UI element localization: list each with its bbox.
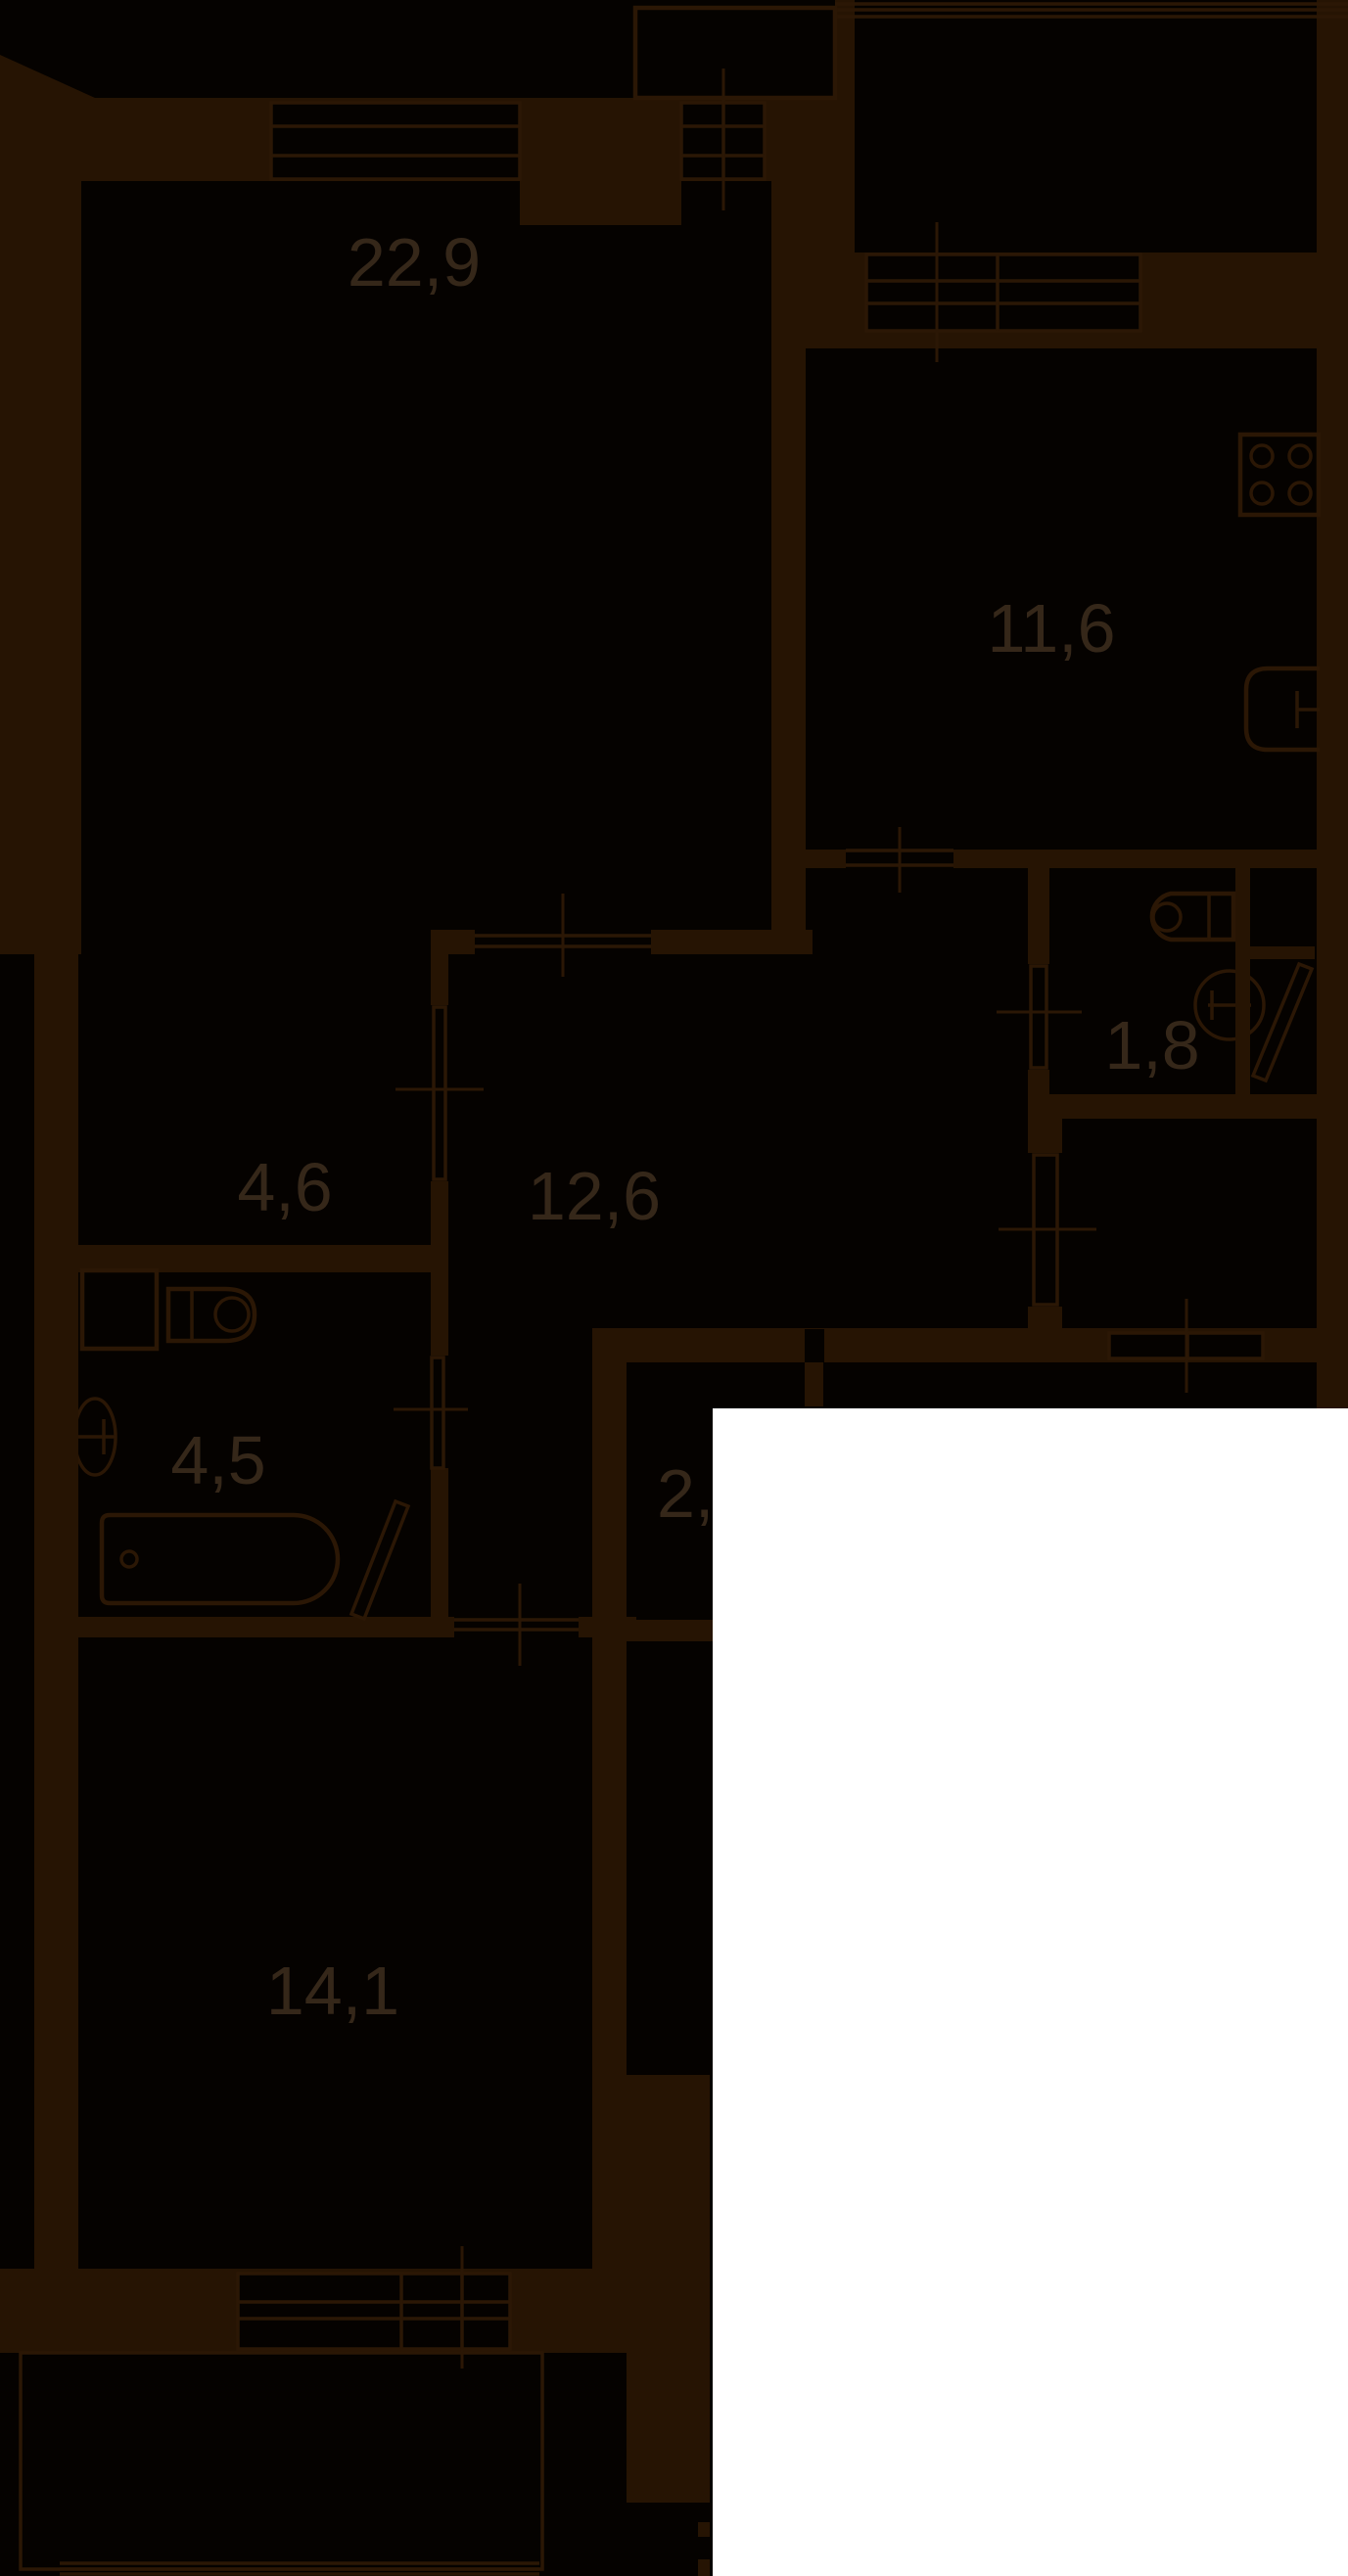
room-label-bedroom: 14,1 (266, 1953, 399, 2029)
wall-gap (805, 1329, 824, 1362)
wall-segment (1028, 1094, 1348, 1119)
wall-stub (805, 1362, 823, 1406)
wall-segment (34, 954, 78, 2271)
room-label-bathroom: 4,5 (170, 1422, 265, 1498)
wall-segment (592, 1637, 627, 2269)
window-opening (238, 2274, 510, 2349)
floorplan-canvas: 22,9 11,6 1,8 4,6 12,6 4,5 2, 14,1 (0, 0, 1348, 2576)
wall-segment (771, 225, 806, 954)
window-opening (866, 254, 1140, 331)
lower-balcony-outline (21, 2353, 542, 2569)
plan-fragment (698, 2537, 710, 2559)
wall-segment (592, 1329, 627, 1644)
room-label-wc: 1,8 (1104, 1007, 1199, 1083)
white-cover-rectangle (713, 1408, 1348, 2576)
room-label-closet: 2, (657, 1455, 714, 1532)
room-label-kitchen: 11,6 (987, 590, 1115, 667)
wall-segment (0, 181, 81, 954)
floorplan-drawing: 22,9 11,6 1,8 4,6 12,6 4,5 2, 14,1 (0, 0, 1348, 2576)
window-opening (271, 103, 520, 179)
wall-segment (1235, 868, 1250, 1094)
room-label-hall: 4,6 (237, 1149, 332, 1225)
wall-segment (1250, 946, 1315, 959)
wall-segment (627, 2075, 710, 2503)
wall-segment (520, 181, 681, 225)
wall-segment (1317, 0, 1348, 1409)
wall-segment (592, 1620, 724, 1641)
wall-segment (835, 0, 855, 254)
plan-fragment (698, 2503, 710, 2522)
room-label-corridor: 12,6 (528, 1158, 661, 1234)
room-label-living-room: 22,9 (348, 224, 481, 300)
